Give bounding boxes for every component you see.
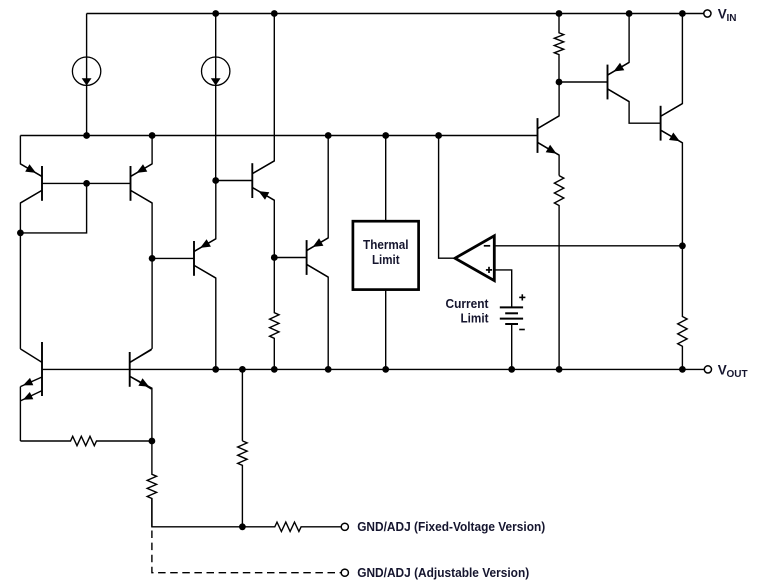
svg-text:GND/ADJ (Fixed-Voltage Version: GND/ADJ (Fixed-Voltage Version) [357, 520, 545, 534]
svg-text:V: V [718, 363, 727, 378]
svg-text:Limit: Limit [372, 253, 400, 267]
svg-text:OUT: OUT [727, 369, 748, 380]
svg-text:Thermal: Thermal [363, 238, 409, 252]
svg-text:Limit: Limit [461, 312, 490, 326]
svg-text:V: V [718, 7, 727, 22]
svg-text:Current: Current [446, 297, 490, 311]
svg-text:IN: IN [727, 13, 737, 24]
svg-text:GND/ADJ (Adjustable Version): GND/ADJ (Adjustable Version) [357, 566, 529, 580]
